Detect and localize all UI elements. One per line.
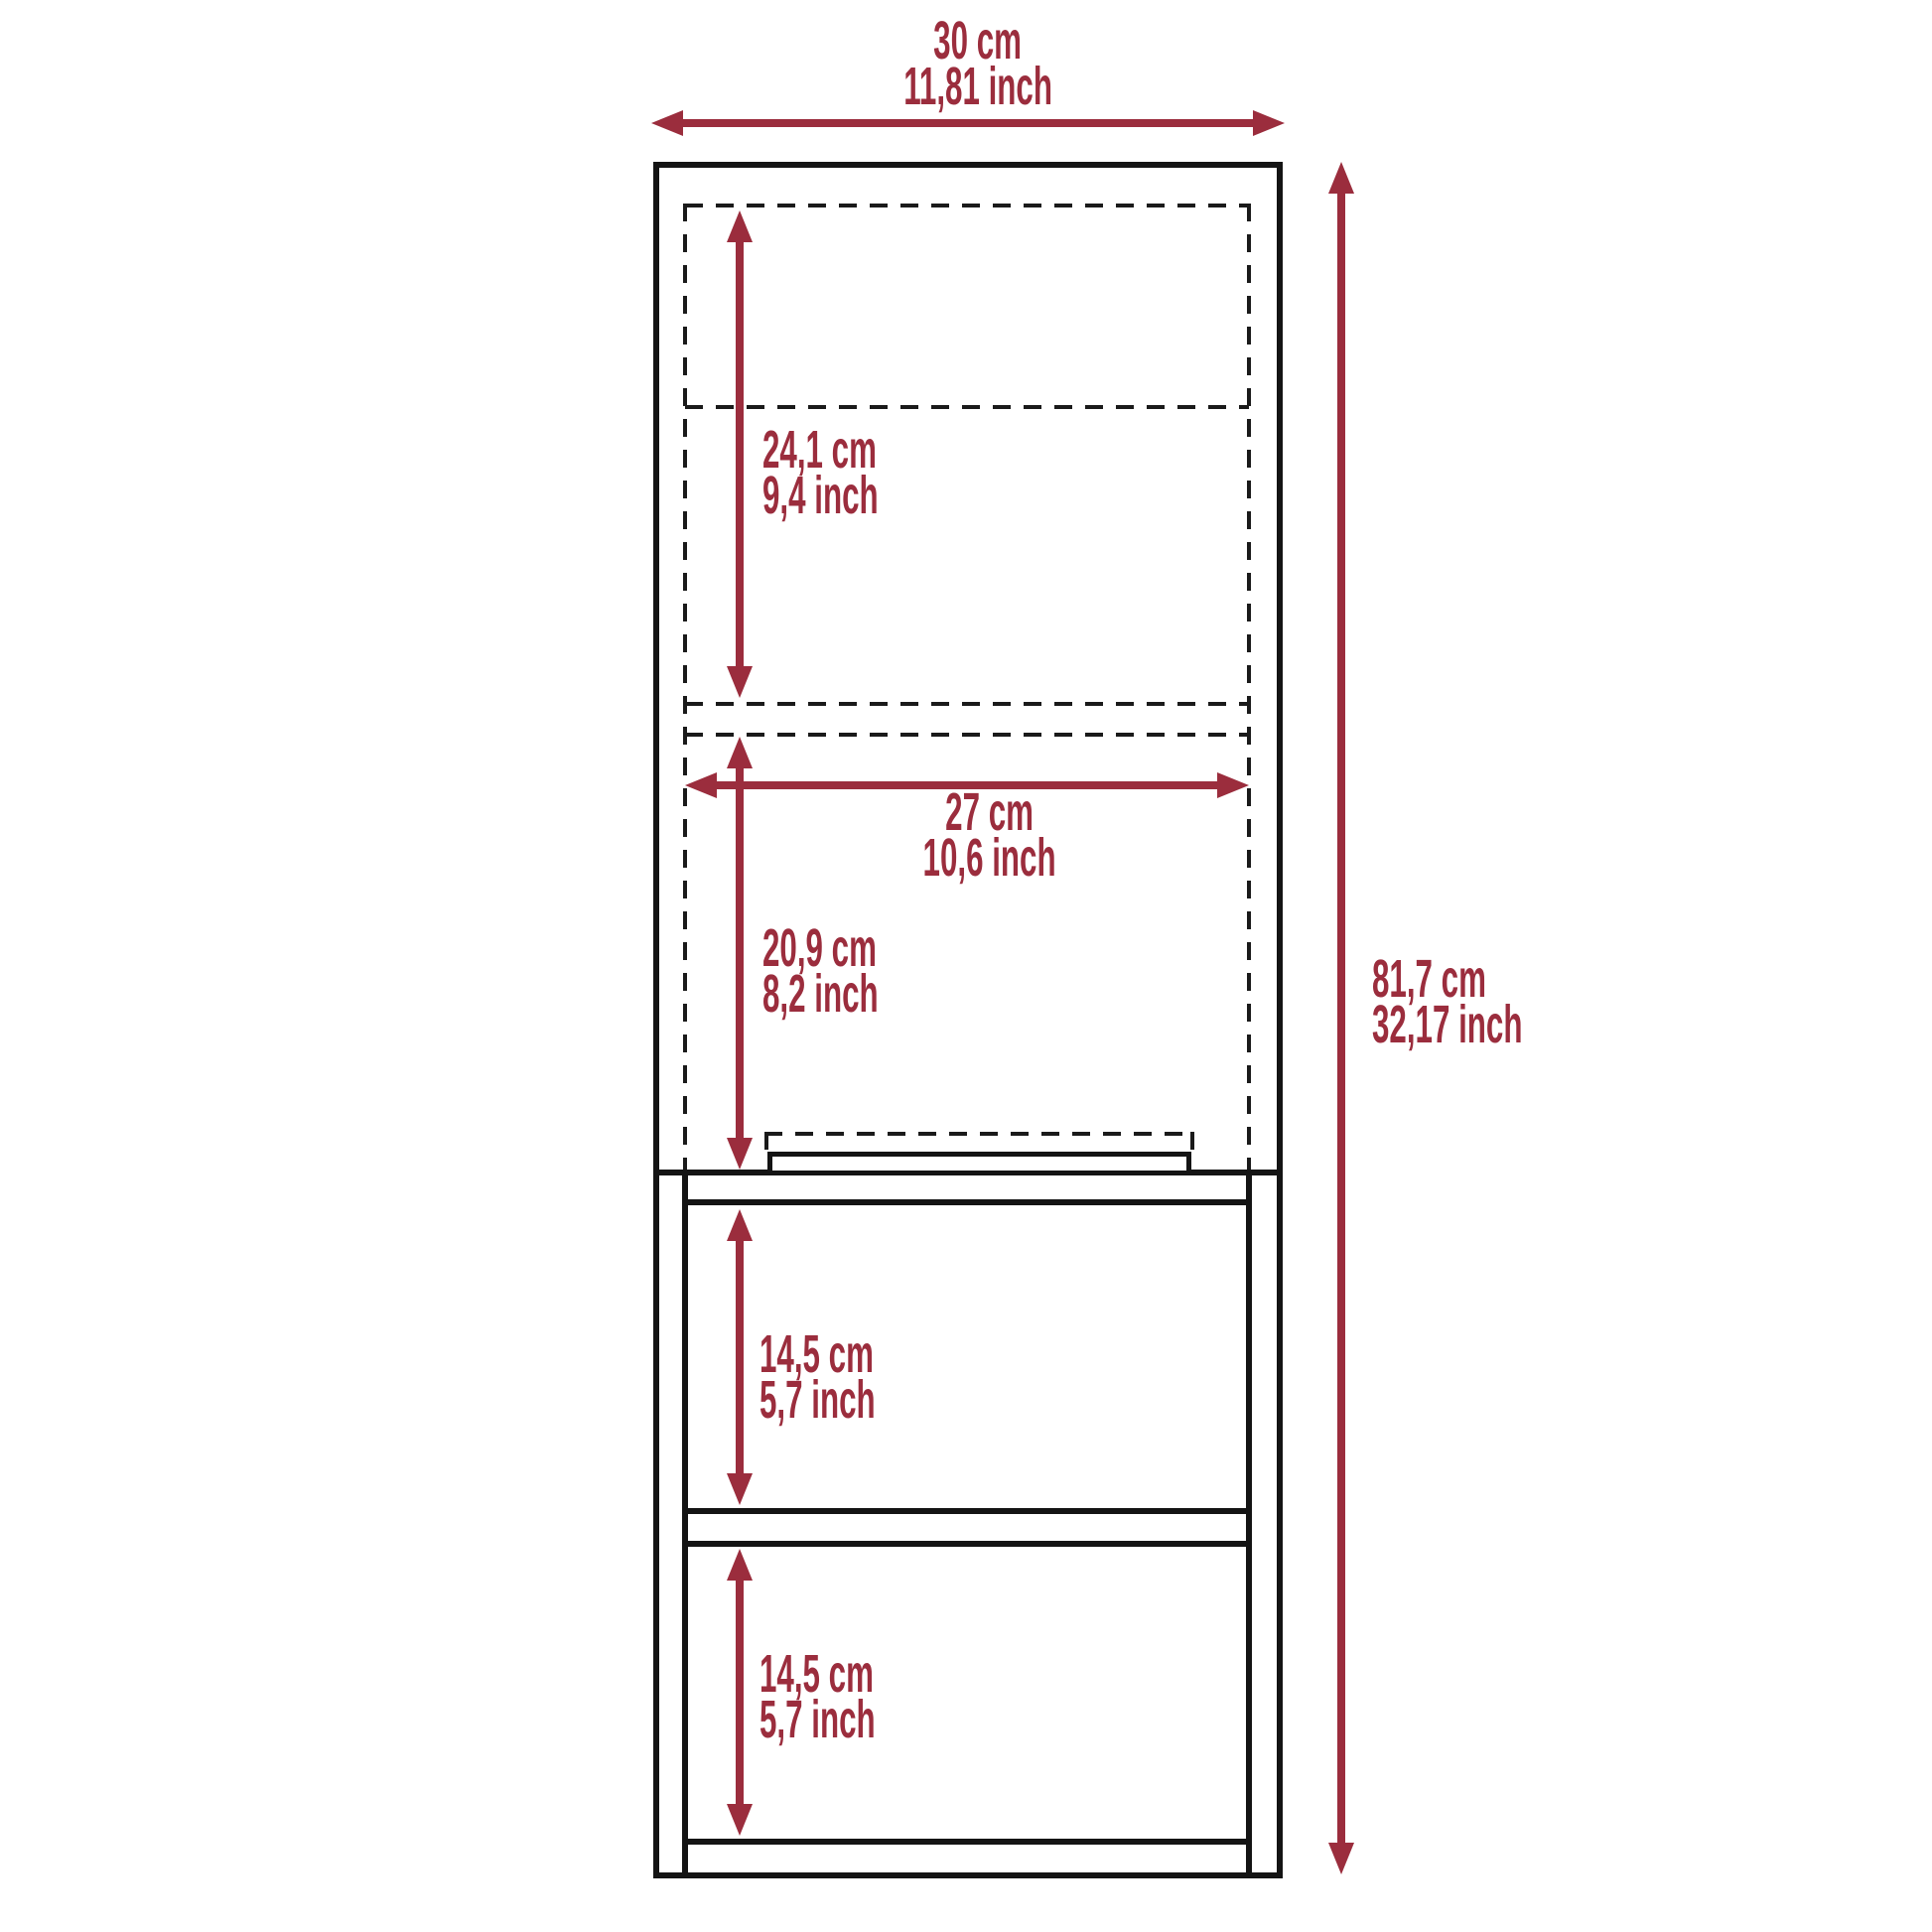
bottom-shelf-top-edge — [685, 1839, 1249, 1845]
overall-width-inch: 11,81 inch — [903, 64, 1052, 109]
door-outline-dashed-right — [1247, 204, 1251, 1170]
middle-shelf-top-edge — [685, 1508, 1249, 1514]
hidden-shelf-dashed-1 — [685, 405, 1249, 409]
middle-shelf-bottom-edge — [685, 1541, 1249, 1547]
upper-compartment-arrow — [727, 210, 753, 698]
door-handle — [767, 1152, 1191, 1175]
cabinet-top-edge — [653, 162, 1283, 168]
open-shelf-bottom-arrow — [727, 1549, 753, 1836]
dimension-diagram: 30 cm 11,81 inch 24,1 cm 9,4 inch 27 cm … — [0, 0, 1932, 1932]
overall-height-arrow — [1328, 162, 1354, 1874]
door-outline-dashed-left — [683, 204, 687, 1170]
lower-compartment-label: 20,9 cm 8,2 inch — [762, 925, 962, 1017]
side-post-left-inner — [682, 1170, 688, 1878]
upper-compartment-inch: 9,4 inch — [762, 473, 879, 518]
door-outline-dashed-top — [685, 204, 1249, 207]
open-shelf-bottom-inch: 5,7 inch — [759, 1697, 876, 1742]
handle-recess-dashed-top — [764, 1132, 1194, 1136]
hidden-shelf-dashed-2-top — [685, 702, 1249, 706]
overall-height-inch: 32,17 inch — [1372, 1002, 1522, 1047]
open-shelf-top-arrow — [727, 1209, 753, 1505]
cabinet-bottom-edge — [653, 1872, 1283, 1878]
cabinet-right-side — [1277, 162, 1283, 1878]
inner-width-inch: 10,6 inch — [923, 835, 1056, 881]
cabinet-left-side — [653, 162, 659, 1878]
lower-compartment-arrow — [727, 737, 753, 1170]
upper-compartment-label: 24,1 cm 9,4 inch — [762, 427, 962, 518]
handle-recess-dashed-left — [764, 1132, 768, 1154]
open-shelf-top-label: 14,5 cm 5,7 inch — [759, 1331, 959, 1423]
open-shelf-bottom-label: 14,5 cm 5,7 inch — [759, 1651, 959, 1742]
side-post-right-inner — [1246, 1170, 1252, 1878]
open-shelf-top-inch: 5,7 inch — [759, 1377, 876, 1423]
divider-board-bottom-edge — [683, 1199, 1251, 1205]
overall-height-label: 81,7 cm 32,17 inch — [1372, 956, 1631, 1047]
handle-recess-dashed-right — [1190, 1132, 1194, 1154]
hidden-shelf-dashed-2-bottom — [685, 733, 1249, 737]
lower-compartment-inch: 8,2 inch — [762, 971, 879, 1017]
